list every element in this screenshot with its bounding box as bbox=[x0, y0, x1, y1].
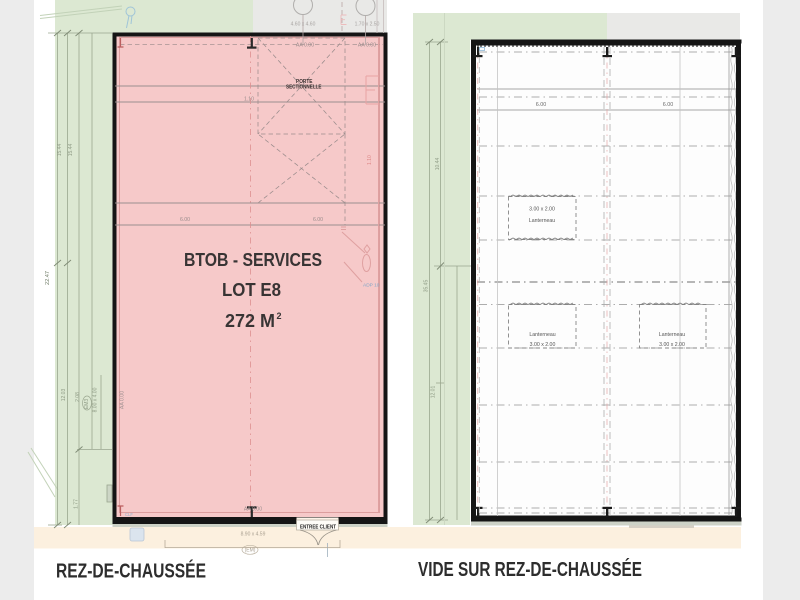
svg-text:ADP 10: ADP 10 bbox=[363, 283, 380, 289]
svg-text:BTOB - SERVICES: BTOB - SERVICES bbox=[184, 250, 322, 270]
svg-text:1.70 x 2.50: 1.70 x 2.50 bbox=[355, 22, 380, 28]
svg-text:1.10: 1.10 bbox=[244, 97, 254, 103]
svg-text:8.00 x 4.00: 8.00 x 4.00 bbox=[93, 387, 99, 412]
svg-text:15.44: 15.44 bbox=[68, 144, 74, 157]
svg-text:3.00 x 2.00: 3.00 x 2.00 bbox=[530, 342, 556, 348]
svg-text:EM3: EM3 bbox=[84, 399, 90, 410]
svg-text:12.03: 12.03 bbox=[61, 389, 67, 402]
svg-text:22.47: 22.47 bbox=[45, 271, 51, 285]
svg-text:12.01: 12.01 bbox=[431, 386, 437, 399]
svg-text:SECTIONNELLE: SECTIONNELLE bbox=[286, 85, 322, 91]
svg-text:6.00: 6.00 bbox=[536, 102, 547, 108]
svg-text:REZ-DE-CHAUSSÉE: REZ-DE-CHAUSSÉE bbox=[56, 560, 206, 583]
svg-text:4.60 x 4.60: 4.60 x 4.60 bbox=[291, 22, 316, 28]
svg-text:15.44: 15.44 bbox=[57, 144, 63, 157]
svg-text:AA 0.00: AA 0.00 bbox=[358, 43, 376, 49]
svg-text:3.00 x 2.00: 3.00 x 2.00 bbox=[659, 342, 685, 348]
svg-text:AA 0.00: AA 0.00 bbox=[296, 43, 314, 49]
svg-text:6.00: 6.00 bbox=[663, 102, 674, 108]
svg-text:LOT E8: LOT E8 bbox=[222, 280, 281, 300]
svg-text:1.77: 1.77 bbox=[74, 499, 80, 509]
svg-text:Lanterneau: Lanterneau bbox=[529, 218, 555, 224]
svg-text:6.00: 6.00 bbox=[313, 217, 323, 223]
svg-text:3.00 x 2.00: 3.00 x 2.00 bbox=[529, 207, 555, 213]
svg-text:(EM): (EM) bbox=[245, 548, 256, 554]
svg-text:VIDE SUR REZ-DE-CHAUSSÉE: VIDE SUR REZ-DE-CHAUSSÉE bbox=[418, 558, 642, 581]
svg-text:2: 2 bbox=[277, 311, 282, 321]
svg-text:8.90 x 4.59: 8.90 x 4.59 bbox=[241, 532, 266, 538]
svg-text:ENTREE CLIENT: ENTREE CLIENT bbox=[300, 525, 336, 531]
svg-text:AA 0.00: AA 0.00 bbox=[120, 391, 126, 409]
svg-text:Lanterneau: Lanterneau bbox=[529, 332, 555, 338]
svg-text:272 M: 272 M bbox=[225, 311, 275, 331]
svg-text:10.44: 10.44 bbox=[435, 158, 441, 171]
svg-text:1.10: 1.10 bbox=[367, 155, 373, 165]
svg-text:CLF: CLF bbox=[125, 512, 133, 517]
svg-text:Lanterneau: Lanterneau bbox=[659, 332, 685, 338]
svg-text:AA 0.00: AA 0.00 bbox=[244, 507, 262, 513]
svg-text:35.45: 35.45 bbox=[424, 280, 430, 293]
svg-text:2.08: 2.08 bbox=[75, 392, 81, 402]
svg-text:6.00: 6.00 bbox=[180, 217, 190, 223]
